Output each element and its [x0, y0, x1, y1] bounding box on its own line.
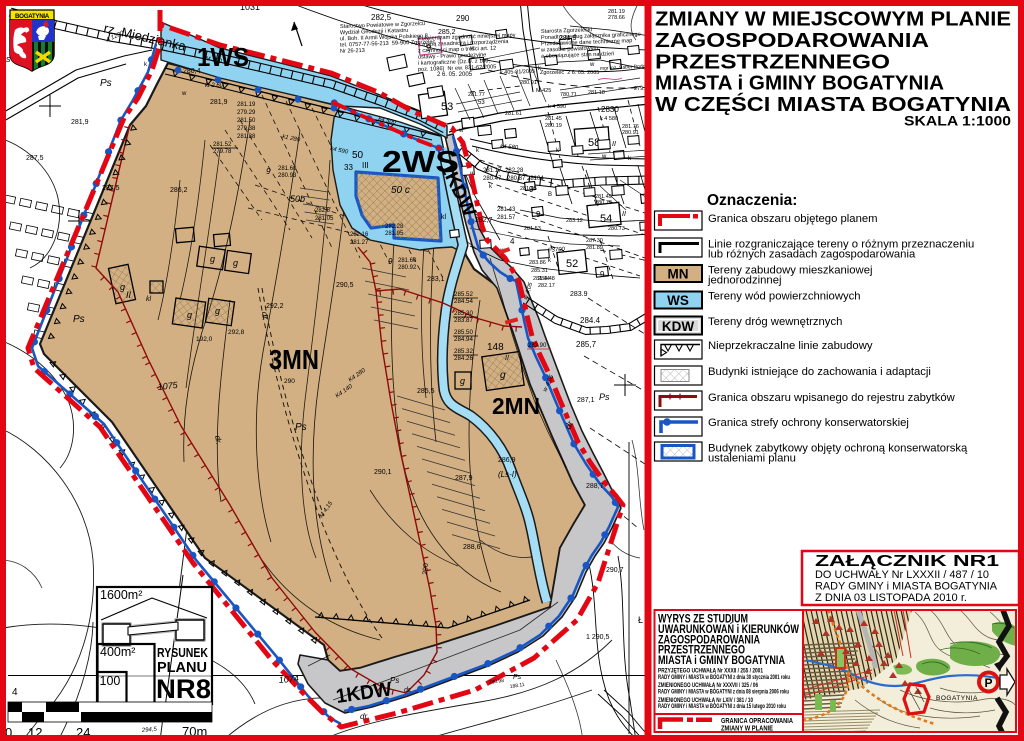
svg-text:281.27: 281.27: [350, 240, 369, 246]
svg-text:284.94: 284.94: [454, 336, 473, 343]
svg-text:Z DNIA 03 LISTOPADA 2010 r.: Z DNIA 03 LISTOPADA 2010 r.: [815, 592, 967, 604]
svg-text:kl: kl: [441, 214, 447, 221]
svg-text:290,7: 290,7: [606, 567, 624, 574]
svg-text:W CZĘŚCI MIASTA BOGATYNIA: W CZĘŚCI MIASTA BOGATYNIA: [655, 92, 1011, 116]
svg-text:148: 148: [487, 342, 504, 353]
svg-text:287.30: 287.30: [586, 238, 603, 244]
svg-text:w: w: [601, 154, 607, 160]
svg-text:281.05: 281.05: [520, 186, 537, 192]
svg-text:MIASTA i GMINY BOGATYNIA: MIASTA i GMINY BOGATYNIA: [658, 655, 785, 667]
svg-text:280.91: 280.91: [622, 130, 639, 136]
svg-text:50: 50: [352, 150, 364, 161]
svg-text:g: g: [233, 258, 238, 268]
svg-text:1 290,5: 1 290,5: [586, 634, 609, 641]
svg-text:287,1: 287,1: [577, 397, 595, 404]
svg-text:192,0: 192,0: [196, 336, 213, 343]
svg-text:281.19: 281.19: [237, 102, 256, 108]
svg-text:9: 9: [388, 257, 393, 266]
svg-text:290,1: 290,1: [374, 469, 392, 476]
svg-text:Ł: Ł: [638, 615, 643, 625]
svg-text:KDW: KDW: [662, 319, 694, 334]
svg-text:B: B: [548, 192, 552, 198]
svg-text:281.45: 281.45: [545, 116, 562, 122]
svg-text:292,2: 292,2: [266, 303, 284, 310]
svg-text:w: w: [589, 62, 595, 68]
svg-text:281.61: 281.61: [505, 111, 522, 117]
svg-text:II: II: [622, 211, 626, 218]
svg-text:285.30: 285.30: [454, 310, 473, 317]
svg-text:281.43: 281.43: [497, 207, 516, 213]
svg-text:g: g: [210, 254, 215, 264]
svg-text:280.92: 280.92: [398, 265, 417, 271]
svg-text:285.50: 285.50: [454, 329, 473, 336]
svg-text:dr.: dr.: [213, 435, 223, 445]
svg-text:290: 290: [284, 378, 295, 385]
svg-text:281.52: 281.52: [213, 142, 232, 148]
svg-text:II: II: [505, 355, 509, 362]
svg-text:P: P: [984, 676, 992, 690]
svg-text:281.05: 281.05: [315, 216, 334, 222]
svg-text:285,7: 285,7: [576, 340, 597, 349]
svg-text:BOGATYNIA: BOGATYNIA: [936, 695, 978, 702]
svg-text:PRZYJĘTEGO UCHWAŁĄ Nr XXXII /: PRZYJĘTEGO UCHWAŁĄ Nr XXXII / 255 / 2001: [658, 669, 764, 675]
svg-text:dr.: dr.: [260, 311, 270, 321]
svg-text:278.66: 278.66: [608, 15, 625, 21]
svg-text:281.89: 281.89: [586, 245, 603, 251]
svg-text:282,8: 282,8: [315, 208, 331, 214]
svg-text:jednorodzinnej: jednorodzinnej: [707, 275, 782, 287]
svg-text:RADY GMINY i MIASTA w BOGATYNI: RADY GMINY i MIASTA w BOGATYNI z dnia 08…: [658, 689, 789, 695]
svg-text:Nieprzekraczalne linie zabudow: Nieprzekraczalne linie zabudowy: [708, 340, 873, 352]
svg-text:54: 54: [600, 213, 612, 225]
svg-text:ustaleniami planu: ustaleniami planu: [708, 453, 796, 465]
svg-text:281.50: 281.50: [237, 118, 256, 124]
svg-text:Granica strefy ochrony konserw: Granica strefy ochrony konserwatorskiej: [708, 417, 909, 429]
svg-text:283.87: 283.87: [454, 317, 473, 324]
svg-text:400m²: 400m²: [100, 645, 135, 659]
svg-text:2 6. 05. 2005: 2 6. 05. 2005: [437, 72, 473, 78]
svg-text:Ps: Ps: [295, 422, 307, 433]
svg-text:Ps: Ps: [100, 78, 112, 89]
svg-text:287,9: 287,9: [455, 475, 473, 482]
svg-text:283,1: 283,1: [427, 276, 445, 283]
svg-text:281.53: 281.53: [524, 226, 541, 232]
svg-text:Nr 26-213: Nr 26-213: [340, 48, 365, 55]
svg-text:F3700: F3700: [548, 247, 566, 254]
svg-text:RADY GMINY i MIASTA BOGATYNIA: RADY GMINY i MIASTA BOGATYNIA: [815, 581, 998, 593]
svg-text:BOGATYNIA: BOGATYNIA: [15, 13, 50, 20]
svg-text:II: II: [126, 290, 132, 300]
svg-text:g: g: [215, 306, 220, 316]
svg-text:SKALA 1:1000: SKALA 1:1000: [904, 114, 1011, 129]
svg-text:279.29: 279.29: [237, 110, 256, 116]
svg-text:w: w: [458, 128, 464, 134]
svg-text:292,8: 292,8: [228, 329, 245, 336]
svg-text:281.60: 281.60: [398, 258, 417, 264]
svg-text:50b: 50b: [290, 194, 305, 204]
svg-text:52: 52: [566, 258, 578, 270]
svg-text:285,5: 285,5: [417, 388, 435, 395]
svg-text:M 425: M 425: [536, 88, 551, 94]
svg-text:Budynki istniejące do zachowan: Budynki istniejące do zachowania i adapt…: [708, 366, 931, 378]
svg-text:Ps: Ps: [599, 392, 610, 402]
svg-text:100: 100: [100, 674, 121, 688]
svg-text:II: II: [612, 141, 616, 148]
svg-text:k 4 580: k 4 580: [600, 116, 618, 122]
svg-text:RADY GMINY i MIASTA w BOGATYNI: RADY GMINY i MIASTA w BOGATYNI z dnia 15…: [658, 704, 786, 710]
svg-text:k 405-81/2005: k 405-81/2005: [500, 69, 535, 76]
svg-text:g: g: [500, 370, 506, 381]
svg-text:1074: 1074: [278, 673, 299, 685]
svg-text:280.19: 280.19: [545, 123, 562, 129]
svg-text:283.86: 283.86: [529, 260, 546, 266]
svg-text:9: 9: [536, 210, 541, 219]
svg-text:281,9: 281,9: [210, 99, 228, 106]
svg-text:RYSUNEK: RYSUNEK: [157, 645, 208, 660]
svg-text:285.32: 285.32: [454, 348, 473, 355]
svg-text:284.4: 284.4: [580, 316, 601, 325]
svg-text:ZMIANY W PLANIE: ZMIANY W PLANIE: [721, 724, 773, 733]
svg-text:280.73: 280.73: [595, 200, 612, 206]
svg-text:280.91: 280.91: [520, 80, 537, 86]
svg-text:284.26: 284.26: [454, 355, 473, 362]
svg-text:286,9: 286,9: [498, 457, 516, 464]
svg-text:283,90: 283,90: [528, 343, 547, 349]
svg-text:281.95: 281.95: [385, 231, 404, 237]
svg-text:dr: dr: [404, 687, 411, 694]
svg-text:Granica obszaru objętego plane: Granica obszaru objętego planem: [708, 213, 878, 225]
svg-text:1600m²: 1600m²: [100, 588, 142, 602]
svg-text:280.87: 280.87: [507, 176, 526, 182]
svg-text:RADY GMINY i MIASTA w BOGATYNI: RADY GMINY i MIASTA w BOGATYNI z dnia 30…: [658, 675, 790, 681]
svg-text:ZAGOSPODAROWANIA: ZAGOSPODAROWANIA: [655, 29, 929, 52]
svg-text:g: g: [120, 282, 125, 292]
svg-text:ZMIANY W MIEJSCOWYM PLANIE: ZMIANY W MIEJSCOWYM PLANIE: [655, 8, 1011, 31]
svg-text:Ps: Ps: [73, 314, 85, 325]
svg-text:281.38: 281.38: [237, 134, 256, 140]
svg-text:288,6: 288,6: [463, 544, 481, 551]
svg-text:281.18: 281.18: [588, 90, 605, 96]
svg-text:279.38: 279.38: [237, 126, 256, 132]
svg-text:290: 290: [422, 563, 430, 575]
svg-text:280,4: 280,4: [183, 68, 201, 75]
svg-text:ZMIENIONEGO UCHWAŁĄ Nr LXIV /: ZMIENIONEGO UCHWAŁĄ Nr LXIV / 381 / 10: [658, 698, 753, 704]
svg-text:281,9: 281,9: [71, 119, 89, 126]
svg-text:MN: MN: [668, 267, 689, 282]
svg-text:Oznaczenia:: Oznaczenia:: [707, 192, 797, 209]
svg-text:283.9: 283.9: [570, 291, 588, 298]
svg-text:281.60: 281.60: [278, 166, 297, 172]
svg-text:284.54: 284.54: [454, 298, 473, 305]
svg-text:281.17: 281.17: [483, 168, 502, 174]
svg-text:4: 4: [12, 687, 18, 698]
svg-text:280.47: 280.47: [483, 176, 502, 182]
svg-text:282.28: 282.28: [385, 224, 404, 230]
svg-text:9: 9: [266, 167, 271, 176]
svg-text:Tereny wód powierzchniowych: Tereny wód powierzchniowych: [708, 291, 861, 303]
svg-text:dr: dr: [360, 712, 367, 721]
svg-text:ZMIENIONEGO UCHWAŁĄ Nr XXXVII: ZMIENIONEGO UCHWAŁĄ Nr XXXVII / 325 / 06: [658, 683, 759, 689]
svg-text:4: 4: [510, 237, 515, 246]
svg-text:290,5: 290,5: [336, 282, 354, 289]
svg-text:283.48: 283.48: [538, 276, 555, 282]
svg-text:282.17: 282.17: [538, 283, 555, 289]
svg-text:285.52: 285.52: [454, 291, 473, 298]
svg-text:287,5: 287,5: [26, 155, 44, 162]
svg-text:282.28: 282.28: [505, 168, 524, 174]
svg-text:NR8: NR8: [156, 674, 211, 704]
svg-text:g: g: [460, 376, 465, 386]
svg-text:287,5: 287,5: [102, 185, 120, 192]
svg-text:282.16: 282.16: [350, 232, 369, 238]
svg-text:kl: kl: [146, 296, 152, 303]
svg-text:282,5: 282,5: [371, 13, 392, 22]
svg-text:Ps: Ps: [513, 674, 522, 681]
svg-text:2MN: 2MN: [492, 393, 540, 419]
svg-text:III: III: [362, 161, 369, 170]
svg-text:780.71: 780.71: [560, 92, 577, 98]
svg-text:DO UCHWAŁY Nr LXXXII / 487 / 1: DO UCHWAŁY Nr LXXXII / 487 / 10: [815, 569, 989, 581]
svg-text:WS: WS: [667, 293, 689, 308]
svg-text:Zgorzelec 2 6. 05. 2005: Zgorzelec 2 6. 05. 2005: [540, 70, 599, 76]
svg-text:(Ls-I): (Ls-I): [498, 470, 517, 479]
svg-text:280.93: 280.93: [278, 173, 297, 179]
svg-text:286,2: 286,2: [170, 187, 188, 194]
svg-text:50 c: 50 c: [391, 185, 410, 196]
svg-text:w: w: [181, 91, 187, 97]
svg-text:53: 53: [478, 100, 485, 106]
svg-text:2830: 2830: [601, 105, 619, 114]
svg-text:285.31: 285.31: [531, 268, 548, 274]
svg-text:MIASTA i GMINY BOGATYNIA: MIASTA i GMINY BOGATYNIA: [655, 72, 944, 95]
svg-text:3MN: 3MN: [269, 344, 319, 375]
svg-text:282,7: 282,7: [475, 217, 493, 224]
svg-text:279.78: 279.78: [213, 149, 232, 155]
svg-text:g: g: [187, 310, 192, 320]
svg-text:Granica obszaru wpisanego do r: Granica obszaru wpisanego do rejestru za…: [708, 392, 956, 404]
svg-text:k 4 590: k 4 590: [548, 104, 566, 110]
svg-text:290: 290: [456, 14, 470, 23]
svg-text:53: 53: [441, 101, 453, 113]
svg-text:PRZESTRZENNEGO: PRZESTRZENNEGO: [655, 50, 890, 73]
svg-text:ZAŁĄCZNIK NR1: ZAŁĄCZNIK NR1: [815, 553, 1000, 570]
svg-text:33: 33: [344, 163, 353, 172]
svg-text:lub różnych zasadach zagospoda: lub różnych zasadach zagospodarowania: [708, 249, 916, 261]
svg-text:281.77: 281.77: [468, 92, 485, 98]
svg-text:281.57: 281.57: [497, 215, 516, 221]
svg-text:288,7: 288,7: [586, 483, 604, 490]
svg-text:280.73: 280.73: [608, 226, 625, 232]
svg-text:kt 2.60: kt 2.60: [205, 83, 224, 89]
svg-text:Tereny dróg wewnętrznych: Tereny dróg wewnętrznych: [708, 316, 842, 328]
svg-text:28104: 28104: [527, 176, 544, 182]
